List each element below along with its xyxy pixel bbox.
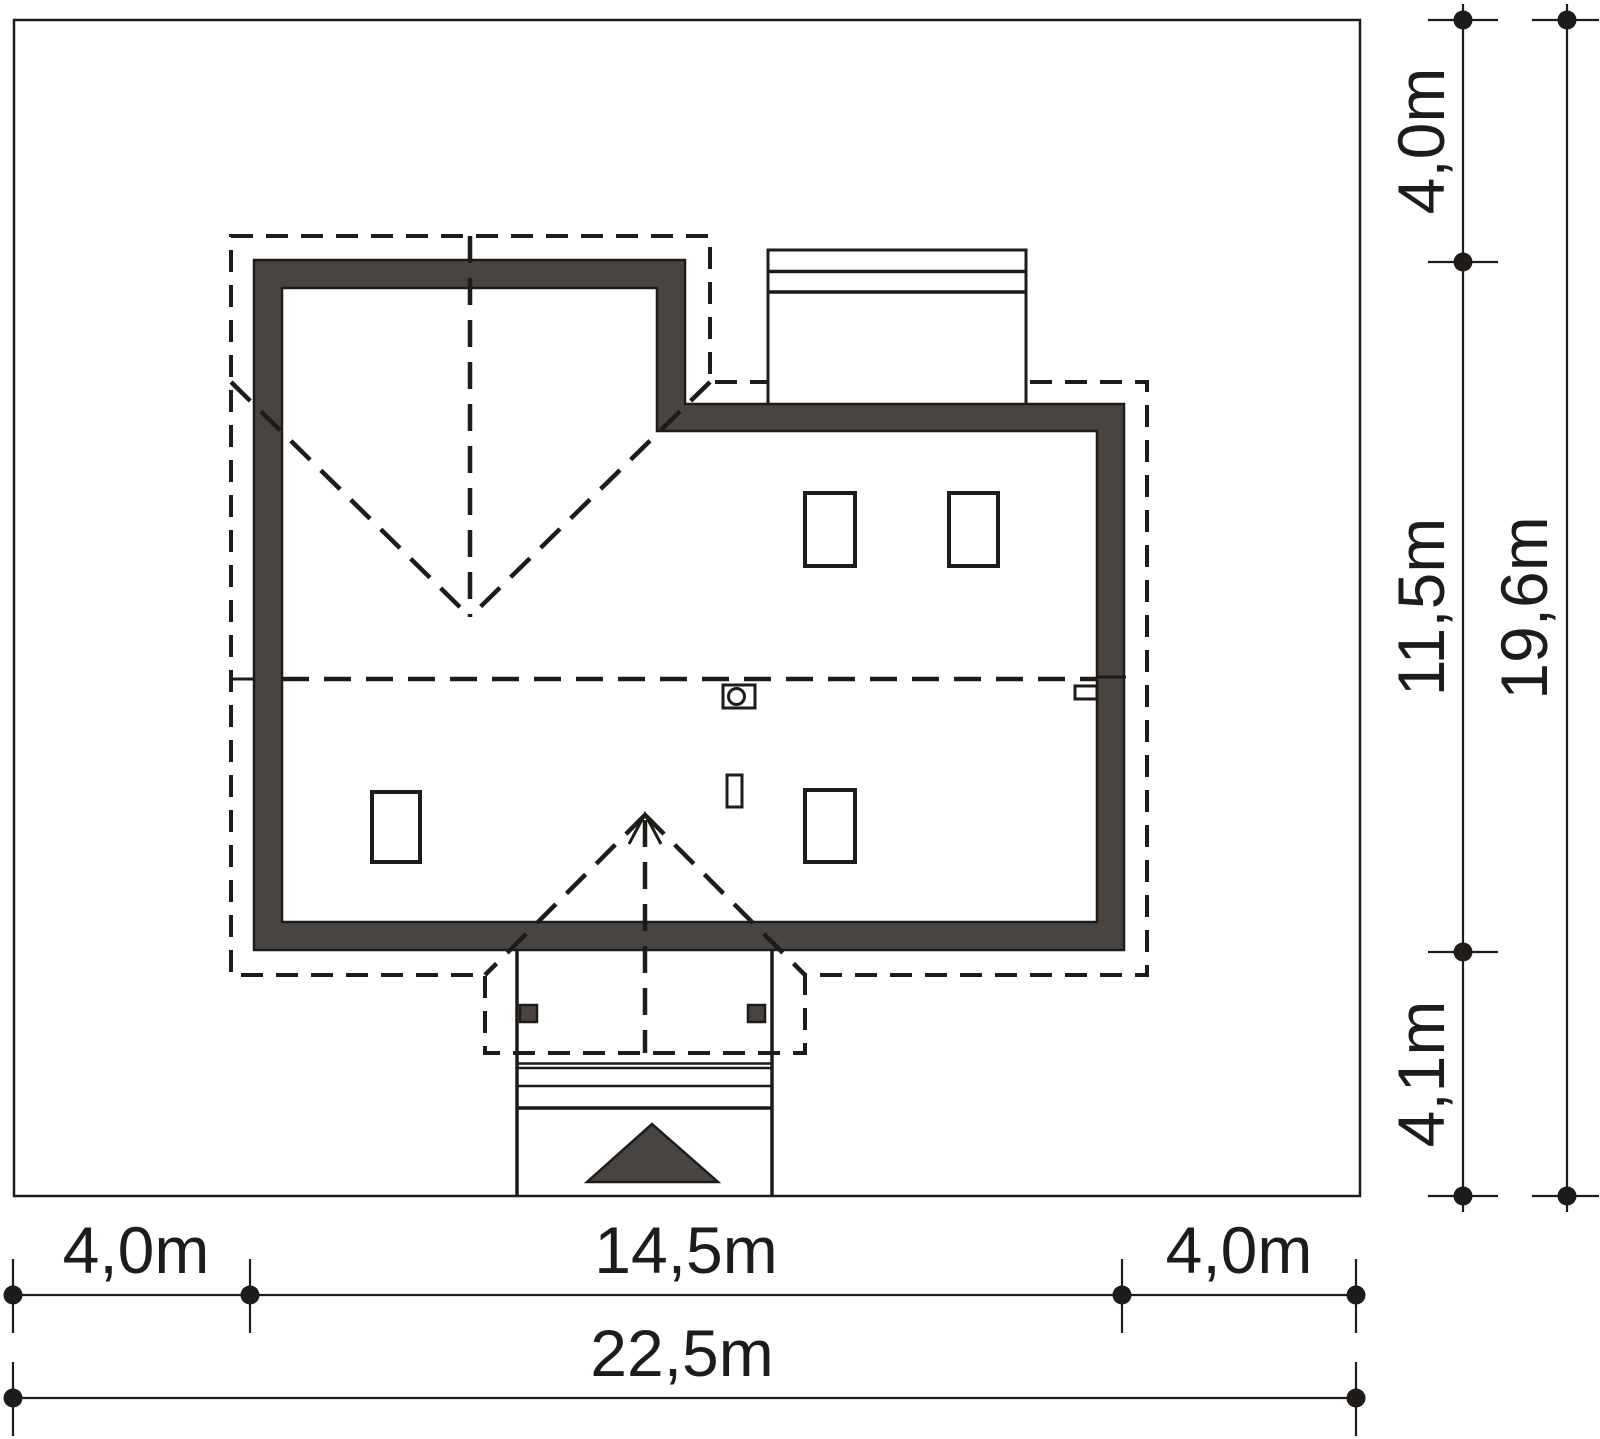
wall-vent-symbol xyxy=(1075,686,1097,699)
roof-window-south-left xyxy=(372,792,420,862)
plot-boundary xyxy=(14,20,1360,1196)
site-plan-drawing: 4,0m 11,5m 4,1m 19,6m 4,0m 14,5m 4,0m 22… xyxy=(0,0,1600,1439)
vent-symbol xyxy=(727,775,742,807)
dim-label-bottom-total: 22,5m xyxy=(590,1320,773,1386)
chimney-flue-circle xyxy=(729,689,745,705)
dim-label-right-bottom: 4,1m xyxy=(1388,1001,1454,1148)
dim-label-right-top: 4,0m xyxy=(1388,68,1454,215)
site-plan-svg xyxy=(0,0,1600,1439)
porch-post-left xyxy=(520,1005,537,1022)
dim-label-right-middle: 11,5m xyxy=(1388,518,1454,697)
dim-label-bottom-left: 4,0m xyxy=(63,1217,210,1283)
roof-window-south-right xyxy=(805,790,855,862)
roof-window-north-left xyxy=(805,493,855,566)
dim-label-bottom-middle: 14,5m xyxy=(594,1217,777,1283)
roof-window-north-right xyxy=(949,493,998,566)
entrance-arrow-icon xyxy=(587,1124,718,1182)
porch-steps xyxy=(517,1064,772,1087)
dim-label-bottom-right: 4,0m xyxy=(1166,1217,1313,1283)
porch-post-right xyxy=(748,1005,765,1022)
dim-label-right-total: 19,6m xyxy=(1491,516,1557,699)
